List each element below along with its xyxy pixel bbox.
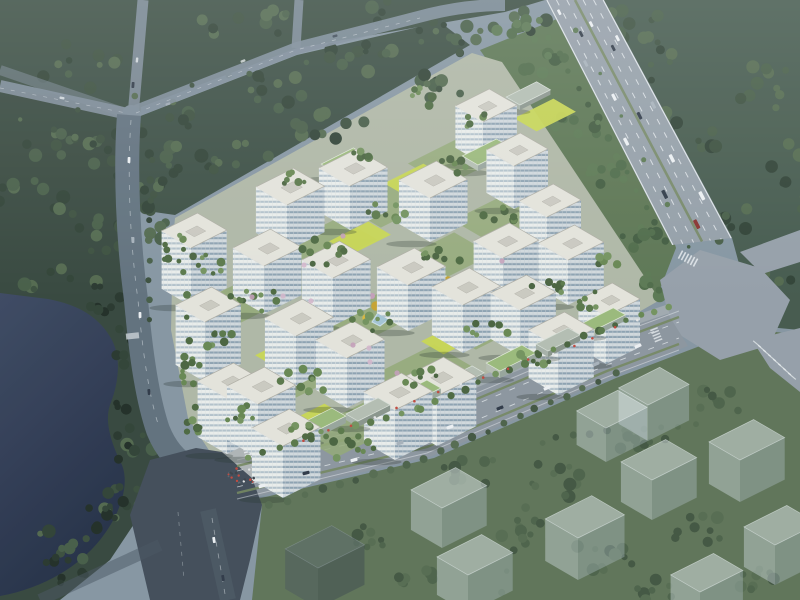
blue-tint xyxy=(0,0,800,600)
rendering-canvas xyxy=(0,0,800,600)
aerial-rendering xyxy=(0,0,800,600)
